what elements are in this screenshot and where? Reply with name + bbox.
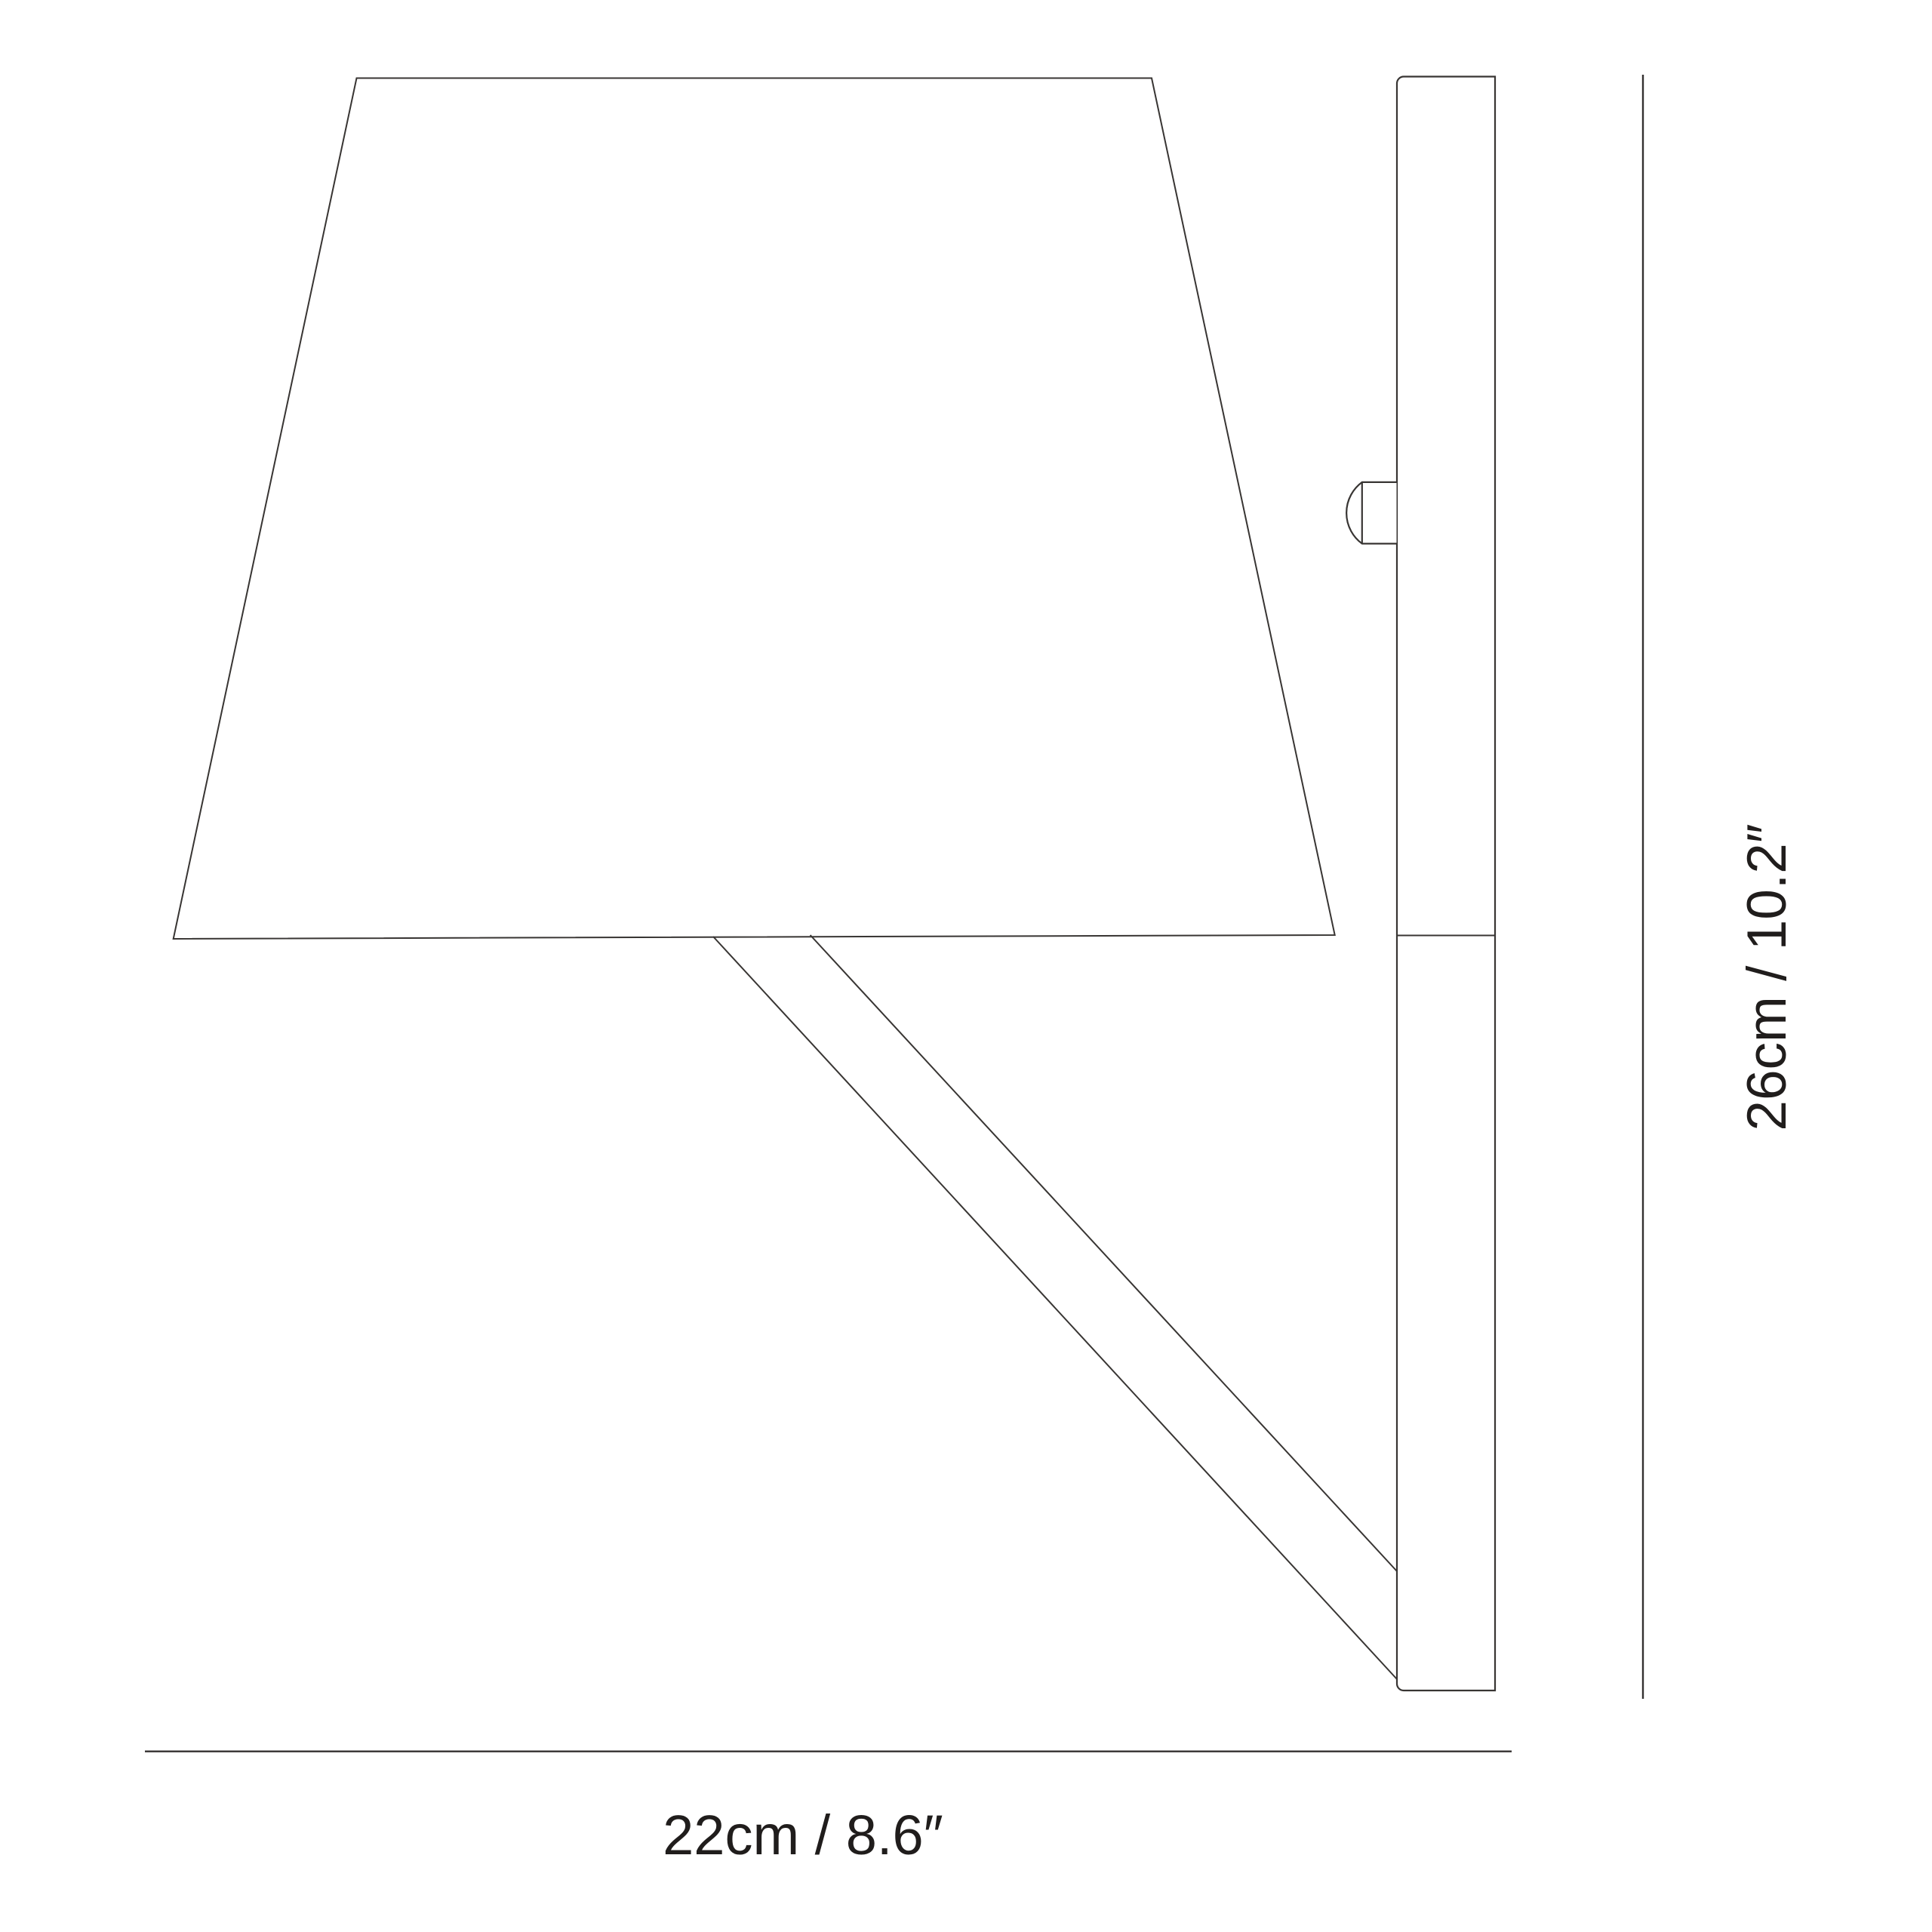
svg-text:22cm / 8.6″: 22cm / 8.6″ (663, 1804, 943, 1866)
svg-text:26cm / 10.2″: 26cm / 10.2″ (1737, 823, 1798, 1131)
